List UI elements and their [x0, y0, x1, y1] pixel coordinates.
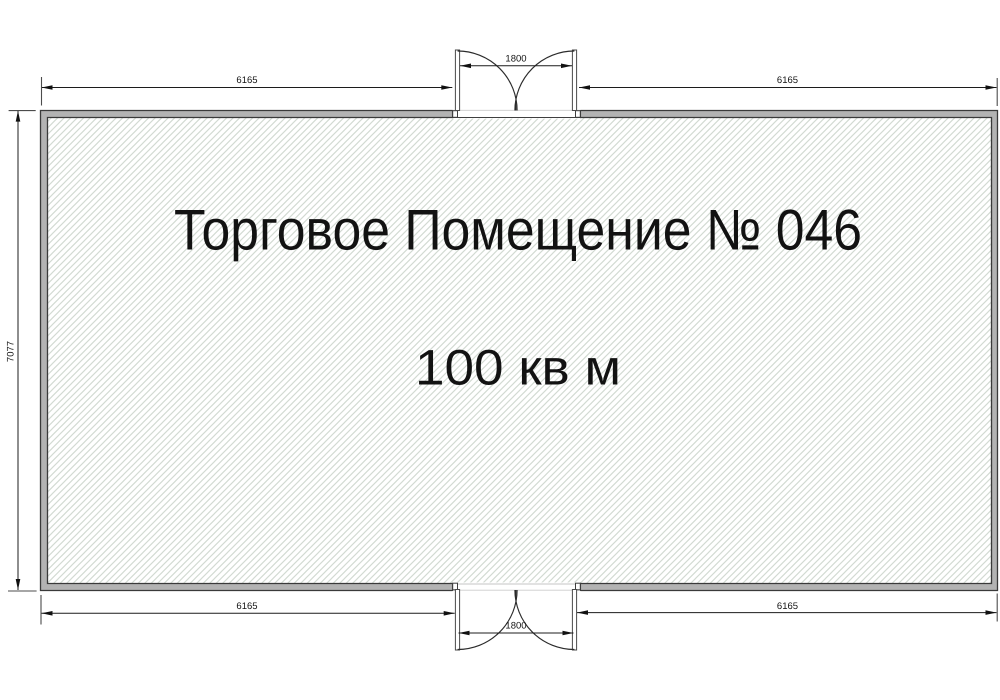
svg-text:Торговое Помещение № 046: Торговое Помещение № 046 [174, 198, 862, 262]
svg-text:7077: 7077 [6, 341, 17, 362]
svg-text:6165: 6165 [236, 601, 257, 612]
svg-text:6165: 6165 [236, 75, 257, 86]
svg-text:6165: 6165 [777, 75, 798, 86]
svg-text:1800: 1800 [505, 621, 526, 632]
svg-text:1800: 1800 [505, 54, 526, 65]
svg-text:6165: 6165 [777, 601, 798, 612]
svg-text:100 кв м: 100 кв м [415, 340, 621, 396]
